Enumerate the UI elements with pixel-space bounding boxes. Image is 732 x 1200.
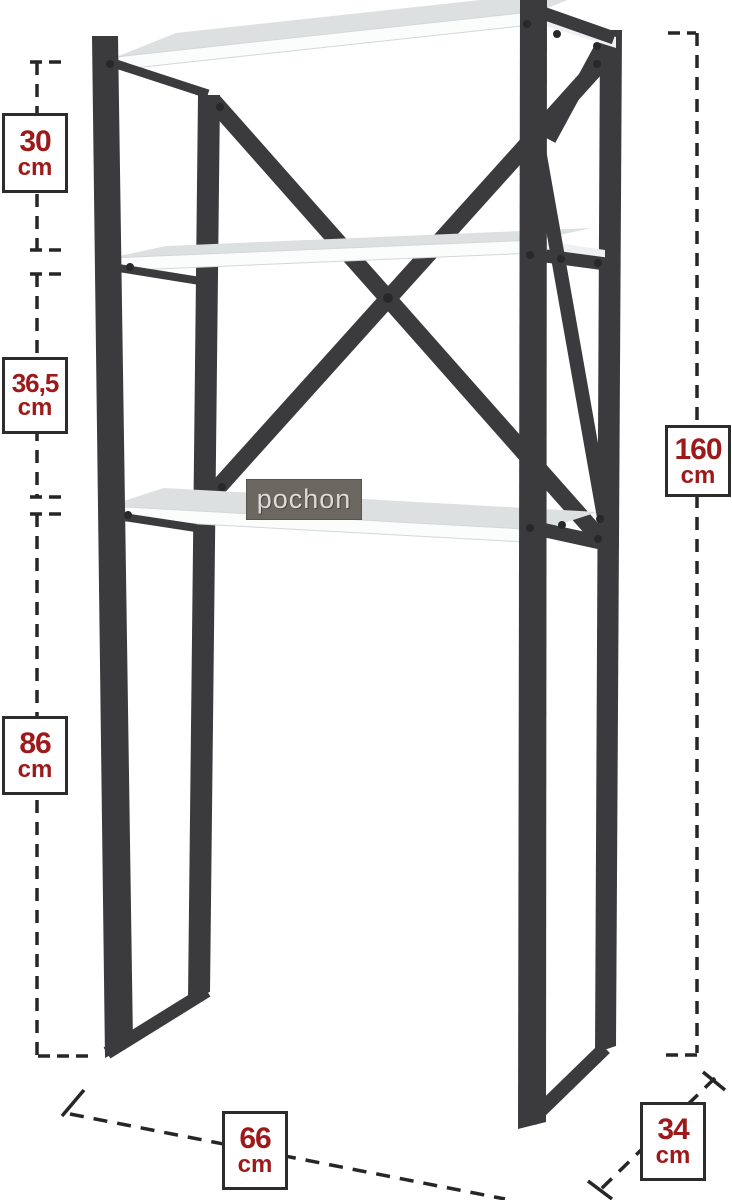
- front-posts: [92, 0, 547, 1129]
- rear-posts: [188, 30, 622, 1053]
- dimension-value: 36,5: [12, 371, 59, 396]
- dimension-value: 66: [239, 1124, 270, 1153]
- dimension-box-34cm: 34 cm: [640, 1102, 706, 1181]
- dimension-unit: cm: [238, 1153, 273, 1177]
- rack-illustration: [0, 0, 732, 1200]
- dimension-unit: cm: [18, 758, 53, 782]
- dimension-box-86cm: 86 cm: [2, 716, 68, 795]
- dimension-box-36-5cm: 36,5 cm: [2, 357, 68, 434]
- dimension-value: 34: [657, 1115, 688, 1144]
- dimension-value: 86: [19, 729, 50, 758]
- dimension-unit: cm: [18, 396, 53, 420]
- dimension-unit: cm: [18, 156, 53, 180]
- dimension-unit: cm: [681, 464, 716, 488]
- brand-label: pochon: [257, 484, 352, 515]
- dimension-unit: cm: [656, 1144, 691, 1168]
- product-dimension-diagram: pochon 30 cm 36,5 cm 86 cm 160 cm 66 cm …: [0, 0, 732, 1200]
- dimension-box-66cm: 66 cm: [222, 1111, 288, 1190]
- dimension-value: 30: [19, 127, 50, 156]
- back-x-brace: [214, 59, 606, 545]
- dimension-box-30cm: 30 cm: [2, 113, 68, 193]
- dimension-box-160cm: 160 cm: [665, 425, 731, 497]
- brand-plate: pochon: [246, 479, 362, 520]
- dimension-value: 160: [674, 435, 721, 464]
